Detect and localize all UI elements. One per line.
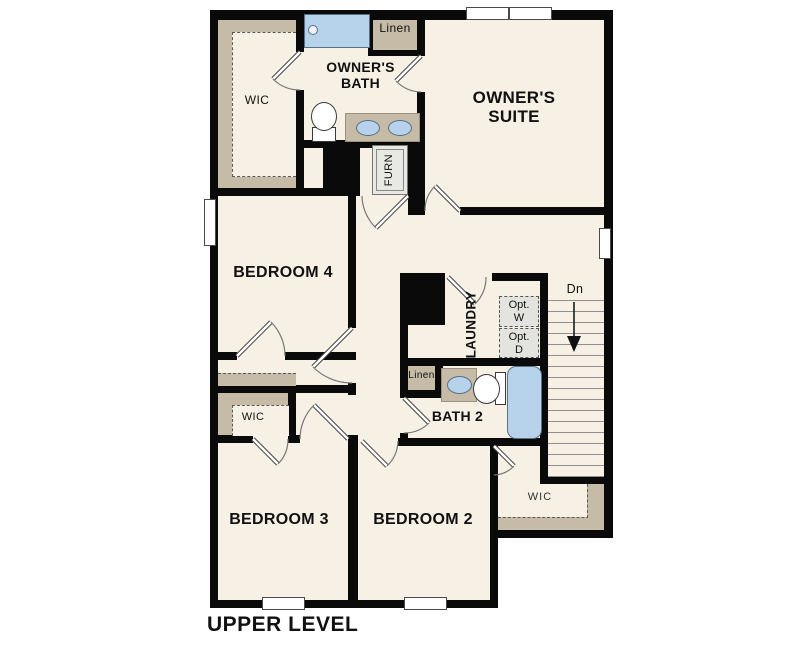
owners-suite-label: OWNER'S SUITE	[434, 88, 594, 126]
owners-wic-label: WIC	[218, 94, 296, 107]
chase	[323, 143, 360, 196]
wall-segment	[288, 435, 300, 443]
staircase	[548, 300, 604, 477]
opt-dryer-line1: Opt.	[500, 331, 538, 344]
wall-outer-right	[604, 10, 613, 538]
bedroom4-label: BEDROOM 4	[218, 264, 348, 282]
wall-segment	[400, 390, 443, 398]
bedroom3-wic-label: WIC	[218, 411, 288, 423]
linen-upper-label: Linen	[373, 21, 417, 35]
window	[509, 7, 552, 20]
wall-segment	[296, 20, 304, 52]
optional-washer: Opt. W	[499, 296, 539, 327]
optional-dryer: Opt. D	[499, 328, 539, 358]
sink-icon	[356, 120, 380, 136]
owners-bath-label: OWNER'S BATH	[304, 60, 417, 91]
opt-washer-line1: Opt.	[500, 299, 538, 312]
owners-suite-label-line2: SUITE	[434, 107, 594, 126]
wall-segment	[210, 352, 237, 360]
bedroom2-wic-shelf-right	[587, 484, 604, 518]
wall-bedroom3-top	[210, 435, 253, 443]
bedroom3-label: BEDROOM 3	[210, 511, 348, 529]
window	[466, 7, 509, 20]
window	[262, 597, 305, 610]
wall-outer-top	[210, 10, 613, 20]
wall-wic2-bottom	[492, 530, 613, 538]
sink-icon	[388, 120, 412, 136]
linen-closet-upper: Linen	[373, 20, 417, 50]
window	[404, 597, 447, 610]
wall-segment	[373, 50, 417, 56]
laundry-label: LAUNDRY	[463, 280, 478, 370]
tub-drain-icon	[308, 25, 318, 35]
exterior-area	[498, 538, 613, 608]
window	[599, 228, 611, 259]
furnace-unit: FURN	[372, 145, 408, 195]
toilet-bowl-icon	[311, 102, 337, 131]
opt-washer-line2: W	[500, 312, 538, 325]
owners-suite-label-line1: OWNER'S	[434, 88, 594, 107]
window	[204, 199, 216, 246]
wall-suite-bottom	[460, 207, 604, 215]
bedroom2-wic-label: WIC	[510, 491, 570, 503]
page-title: UPPER LEVEL	[207, 613, 467, 637]
owners-bath-label-line2: BATH	[304, 76, 417, 92]
bathtub-icon	[507, 366, 542, 439]
wall-segment	[210, 385, 356, 393]
wall-bedroom4-right	[348, 196, 356, 328]
wall-segment	[417, 20, 425, 56]
stairs-dn-label: Dn	[560, 282, 590, 296]
wall-bedroom2-right	[490, 438, 498, 608]
toilet-bowl-icon	[473, 374, 500, 404]
owners-bath-label-line1: OWNER'S	[304, 60, 417, 76]
wall-segment	[400, 433, 408, 446]
wall-outer-bottom	[210, 600, 498, 608]
wall-bedroom2-top	[398, 438, 548, 446]
linen-closet-bath2: Linen	[408, 366, 435, 390]
bedroom2-label: BEDROOM 2	[356, 511, 490, 529]
bedroom2-wic-shelf-bottom	[498, 517, 604, 530]
chase	[400, 273, 445, 325]
wall-stairs-bottom	[548, 477, 604, 484]
opt-dryer-line2: D	[500, 344, 538, 357]
floor-plan: Linen Linen FURN Opt. W Opt. D	[0, 0, 810, 648]
wall-segment	[408, 140, 425, 215]
wall-segment	[285, 352, 356, 360]
bath2-label: BATH 2	[410, 409, 505, 425]
sink-icon	[447, 376, 472, 394]
bedroom4-closet-shelf	[218, 373, 296, 386]
linen-bath2-label: Linen	[408, 370, 435, 381]
furnace-label: FURN	[383, 148, 395, 192]
